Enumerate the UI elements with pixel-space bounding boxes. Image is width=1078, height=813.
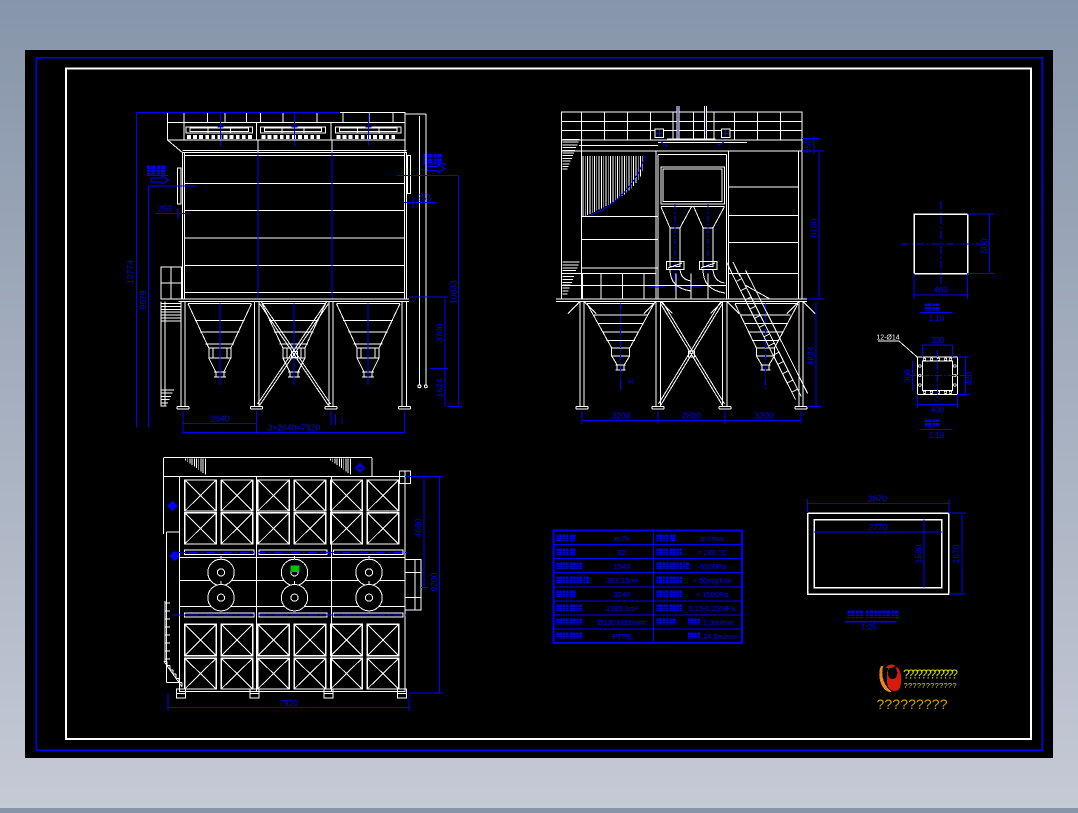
svg-text:2640: 2640 — [210, 414, 229, 424]
svg-text:1520: 1520 — [914, 544, 924, 563]
svg-text:1.3m/min: 1.3m/min — [703, 618, 734, 627]
svg-text:1:10: 1:10 — [929, 431, 945, 440]
svg-text:1:25: 1:25 — [861, 623, 877, 632]
svg-text:6100: 6100 — [809, 218, 819, 237]
svg-text:H: H — [628, 379, 633, 386]
svg-text:3×2640=7920: 3×2640=7920 — [268, 423, 321, 433]
svg-text:2870: 2870 — [868, 493, 887, 503]
svg-text:3200: 3200 — [755, 410, 774, 420]
svg-text:PTFE: PTFE — [612, 632, 631, 641]
svg-text:-6000Pa: -6000Pa — [698, 562, 727, 571]
svg-text:4824: 4824 — [806, 346, 816, 365]
svg-text:7920: 7920 — [279, 698, 298, 708]
svg-text:253: 253 — [158, 204, 172, 214]
svg-text:????????????: ???????????? — [904, 681, 957, 690]
svg-text:1670: 1670 — [951, 544, 961, 563]
svg-text:1624: 1624 — [435, 378, 445, 397]
svg-text:10833: 10833 — [449, 280, 459, 304]
svg-text:m³/h: m³/h — [615, 534, 630, 543]
svg-text:500: 500 — [979, 239, 989, 253]
svg-text:9579: 9579 — [138, 290, 148, 309]
svg-text:1:10: 1:10 — [929, 314, 945, 323]
svg-text:4600: 4600 — [413, 518, 423, 537]
svg-text:m³/min: m³/min — [701, 534, 724, 543]
svg-text:300: 300 — [931, 336, 945, 345]
svg-text:24.5m/min: 24.5m/min — [703, 632, 738, 641]
svg-text:I: I — [341, 416, 344, 426]
svg-text:0.15-0.25MPa: 0.15-0.25MPa — [688, 604, 736, 613]
svg-text:< 1500Pa: < 1500Pa — [696, 590, 729, 599]
svg-text:62: 62 — [618, 548, 626, 557]
svg-text:253: 253 — [417, 193, 431, 203]
svg-text:?????????: ????????? — [877, 696, 948, 712]
svg-text:400: 400 — [965, 371, 974, 385]
svg-text:????????????: ???????????? — [903, 668, 958, 682]
svg-text:12774: 12774 — [125, 260, 135, 284]
svg-text:2800: 2800 — [682, 410, 701, 420]
svg-text:9200: 9200 — [429, 572, 439, 591]
svg-text:3200: 3200 — [612, 410, 631, 420]
svg-text:Ø130 6000mm: Ø130 6000mm — [597, 618, 647, 627]
svg-text:< 50mg/Nm: < 50mg/Nm — [693, 576, 732, 585]
svg-text:300: 300 — [904, 369, 913, 383]
svg-text:460: 460 — [934, 285, 948, 295]
svg-text:400: 400 — [931, 406, 945, 415]
svg-text:2770: 2770 — [869, 522, 888, 532]
svg-text:363.13m²: 363.13m² — [606, 576, 638, 585]
svg-text:2185.6m²: 2185.6m² — [606, 604, 638, 613]
svg-text:< 240 °C: < 240 °C — [697, 548, 727, 557]
svg-text:3700: 3700 — [435, 323, 445, 342]
svg-text:12-Ø14: 12-Ø14 — [876, 335, 899, 342]
svg-text:1548: 1548 — [614, 562, 631, 571]
svg-text:3248: 3248 — [614, 590, 631, 599]
